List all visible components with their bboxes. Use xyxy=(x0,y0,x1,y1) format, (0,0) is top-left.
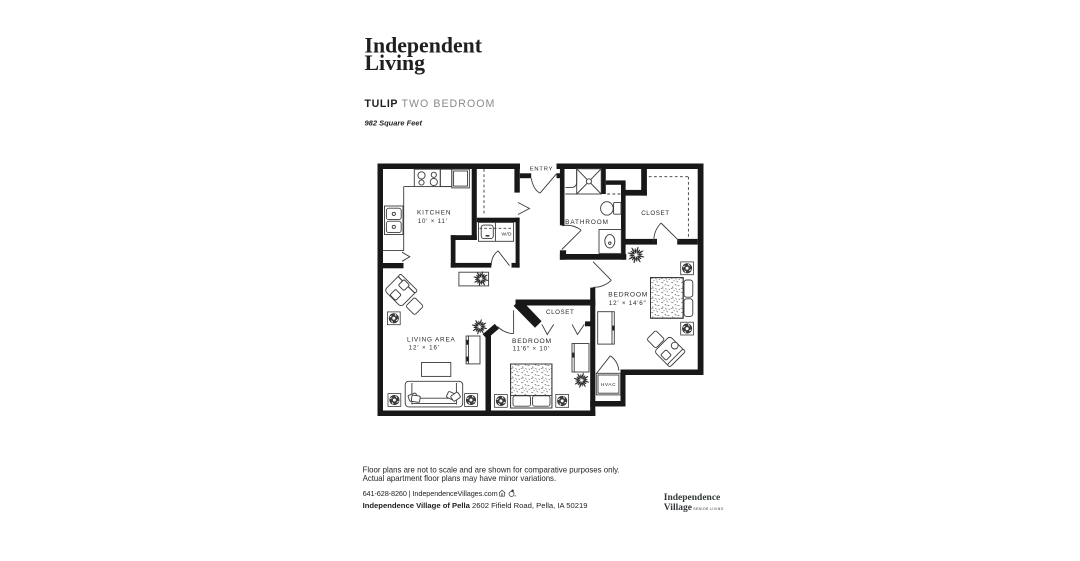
svg-text:982 Square Feet: 982 Square Feet xyxy=(365,118,423,127)
svg-text:11′6″ × 10′: 11′6″ × 10′ xyxy=(513,346,550,353)
svg-text:Independence: Independence xyxy=(664,493,720,503)
svg-text:BEDROOM: BEDROOM xyxy=(512,338,552,345)
svg-text:CLOSET: CLOSET xyxy=(546,309,574,316)
svg-text:Actual apartment floor plans m: Actual apartment floor plans may have mi… xyxy=(363,474,557,483)
svg-text:TULIP TWO BEDROOM: TULIP TWO BEDROOM xyxy=(365,98,496,110)
svg-text:10′ × 11′: 10′ × 11′ xyxy=(418,218,448,225)
svg-text:LIVING AREA: LIVING AREA xyxy=(407,337,456,344)
svg-text:641-628-8260 | IndependenceVil: 641-628-8260 | IndependenceVillages.com xyxy=(363,489,498,498)
svg-text:Independence Village of Pella: Independence Village of Pella 2602 Fifie… xyxy=(363,501,588,510)
svg-text:Living: Living xyxy=(365,51,426,75)
svg-text:ENTRY: ENTRY xyxy=(530,166,554,172)
svg-text:HVAC: HVAC xyxy=(601,382,616,388)
svg-text:CLOSET: CLOSET xyxy=(641,210,669,217)
svg-text:W/D: W/D xyxy=(501,232,512,238)
svg-text:BATHROOM: BATHROOM xyxy=(565,219,609,226)
svg-text:BEDROOM: BEDROOM xyxy=(608,291,648,298)
svg-text:KITCHEN: KITCHEN xyxy=(417,210,451,217)
svg-text:12′ × 16′: 12′ × 16′ xyxy=(409,345,440,352)
svg-text:12′ × 14′6″: 12′ × 14′6″ xyxy=(609,300,647,307)
